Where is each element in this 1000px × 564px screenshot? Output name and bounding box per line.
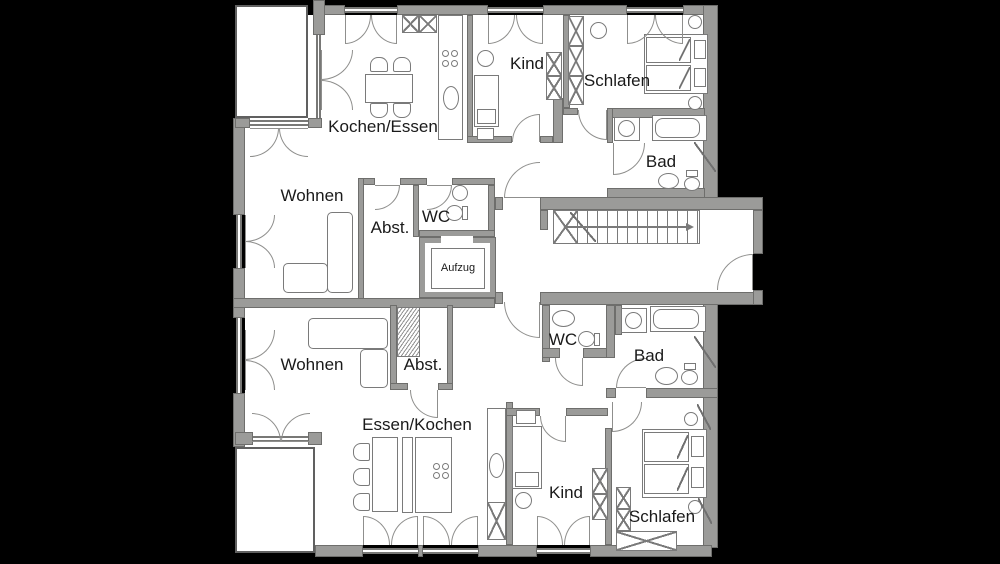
stove-icon (451, 50, 458, 57)
wall-segment (607, 108, 613, 143)
stove-icon (442, 463, 449, 470)
sink-icon (658, 173, 679, 189)
window (423, 548, 478, 554)
shelf-icon (397, 307, 420, 357)
radiator-icon (688, 15, 702, 29)
window (363, 548, 418, 554)
window (627, 7, 683, 13)
radiator-icon (684, 412, 698, 426)
sideboard-icon (616, 531, 677, 551)
wall-segment (540, 292, 763, 305)
cupboard-icon (487, 502, 506, 540)
stair-direction-line (566, 226, 688, 228)
chair (515, 492, 532, 509)
chair (353, 468, 370, 486)
balcony (235, 5, 308, 118)
room-label-top-living: Wohnen (280, 186, 343, 206)
wall-segment (235, 118, 250, 128)
stove-icon (433, 472, 440, 479)
shower-rod-icon (694, 142, 716, 172)
room-label-bottom-child: Kind (549, 483, 583, 503)
window (250, 120, 308, 126)
wall-segment (753, 210, 763, 254)
window (488, 7, 543, 13)
floor-plan: Kochen/Essen Kind Schlafen Bad Wohnen Ab… (0, 0, 1000, 564)
dining-table (372, 437, 398, 512)
wall-segment (308, 432, 322, 445)
chair (353, 443, 370, 461)
dining-table (365, 74, 413, 103)
chair (353, 493, 370, 511)
wall-segment (540, 136, 553, 143)
room-label-top-wc: WC (422, 207, 450, 227)
stove-icon (442, 60, 449, 67)
wall-segment (447, 305, 453, 390)
blanket-fold (677, 467, 688, 491)
wall-segment (233, 268, 245, 318)
chair (590, 22, 607, 39)
stove-icon (451, 60, 458, 67)
room-label-elevator: Aufzug (441, 262, 475, 274)
wall-segment (553, 98, 563, 143)
sofa (308, 318, 388, 349)
wall-segment (540, 210, 548, 230)
wall-segment (495, 292, 503, 304)
radiator-rod-icon (698, 498, 712, 524)
sink-icon (452, 185, 468, 201)
radiator-rod-icon (697, 404, 711, 430)
wall-segment (233, 298, 495, 308)
stove-icon (442, 472, 449, 479)
toilet-icon (578, 331, 595, 347)
wall-segment (540, 197, 763, 210)
bathtub-basin-icon (655, 118, 700, 138)
window (537, 548, 590, 554)
toilet-icon (684, 177, 700, 191)
wardrobe-icon (592, 494, 608, 520)
sink-icon (552, 310, 575, 327)
wardrobe-icon (402, 15, 419, 33)
window (236, 318, 242, 393)
wall-segment (358, 178, 364, 300)
room-label-top-storage: Abst. (371, 218, 410, 238)
room-label-top-kitchen-dining: Kochen/Essen (328, 117, 438, 137)
wall-segment (313, 0, 325, 35)
radiator-icon (688, 96, 702, 110)
sofa (360, 349, 388, 388)
pillow (694, 40, 706, 59)
blanket-fold (677, 435, 688, 459)
wall-segment (235, 432, 253, 445)
pillow (691, 436, 704, 457)
wall-segment (452, 178, 495, 185)
wall-segment (308, 118, 322, 128)
wardrobe-icon (568, 16, 584, 46)
wardrobe-icon (568, 46, 584, 76)
nightstand (477, 128, 494, 140)
sink-icon (443, 86, 459, 110)
wall-segment (646, 388, 718, 398)
wall-segment (467, 15, 473, 143)
room-label-bottom-bathroom: Bad (634, 346, 664, 366)
room-label-top-child: Kind (510, 54, 544, 74)
wall-segment (606, 305, 615, 358)
room-label-bottom-wc: WC (549, 330, 577, 350)
stove-icon (442, 50, 449, 57)
elevator-door (441, 236, 473, 244)
pillow (691, 467, 704, 488)
wardrobe-icon (546, 76, 562, 100)
bathtub-basin-icon (653, 309, 699, 329)
kitchen-island (402, 437, 413, 513)
wall-segment (495, 197, 503, 210)
shower-rod-icon (694, 336, 716, 368)
wall-segment (390, 305, 397, 390)
wardrobe-icon (592, 468, 608, 494)
wardrobe-icon (568, 76, 584, 105)
room-label-top-bathroom: Bad (646, 152, 676, 172)
stair-direction-arrow (686, 223, 694, 231)
room-label-bottom-living: Wohnen (280, 355, 343, 375)
window (236, 215, 242, 268)
washing-machine-drum-icon (625, 312, 642, 329)
room-label-bottom-bedroom: Schlafen (629, 507, 695, 527)
wall-segment (390, 383, 408, 390)
chair (477, 50, 494, 67)
pillow (477, 109, 496, 124)
wardrobe-icon (546, 52, 562, 76)
stove-icon (433, 463, 440, 470)
sink-icon (655, 367, 678, 385)
chair (393, 57, 411, 72)
sink-icon (489, 453, 504, 478)
washing-machine-drum-icon (618, 120, 635, 137)
wall-segment (563, 108, 578, 115)
wall-segment (233, 118, 245, 215)
kitchen-counter (438, 15, 463, 140)
wall-segment (438, 383, 453, 390)
wardrobe-icon (616, 487, 631, 509)
chair (393, 103, 411, 118)
wall-segment (315, 545, 363, 557)
sofa (327, 212, 353, 293)
wall-segment (478, 545, 537, 557)
pillow (694, 68, 706, 87)
sofa (283, 263, 328, 293)
pillow (515, 472, 539, 487)
nightstand (516, 410, 536, 424)
blanket-fold (679, 67, 690, 89)
toilet-icon (681, 370, 698, 385)
chair (370, 57, 388, 72)
wall-segment (753, 290, 763, 305)
chair (370, 103, 388, 118)
wardrobe-icon (419, 15, 437, 33)
wall-segment (400, 178, 427, 185)
room-label-bottom-storage: Abst. (404, 355, 443, 375)
wall-segment (543, 5, 627, 15)
room-label-top-bedroom: Schlafen (584, 71, 650, 91)
wall-segment (397, 5, 488, 15)
wall-segment (606, 388, 616, 398)
wall-segment (566, 408, 608, 416)
window (345, 7, 397, 13)
balcony (235, 447, 315, 553)
room-label-bottom-dining-kitchen: Essen/Kochen (362, 415, 472, 435)
